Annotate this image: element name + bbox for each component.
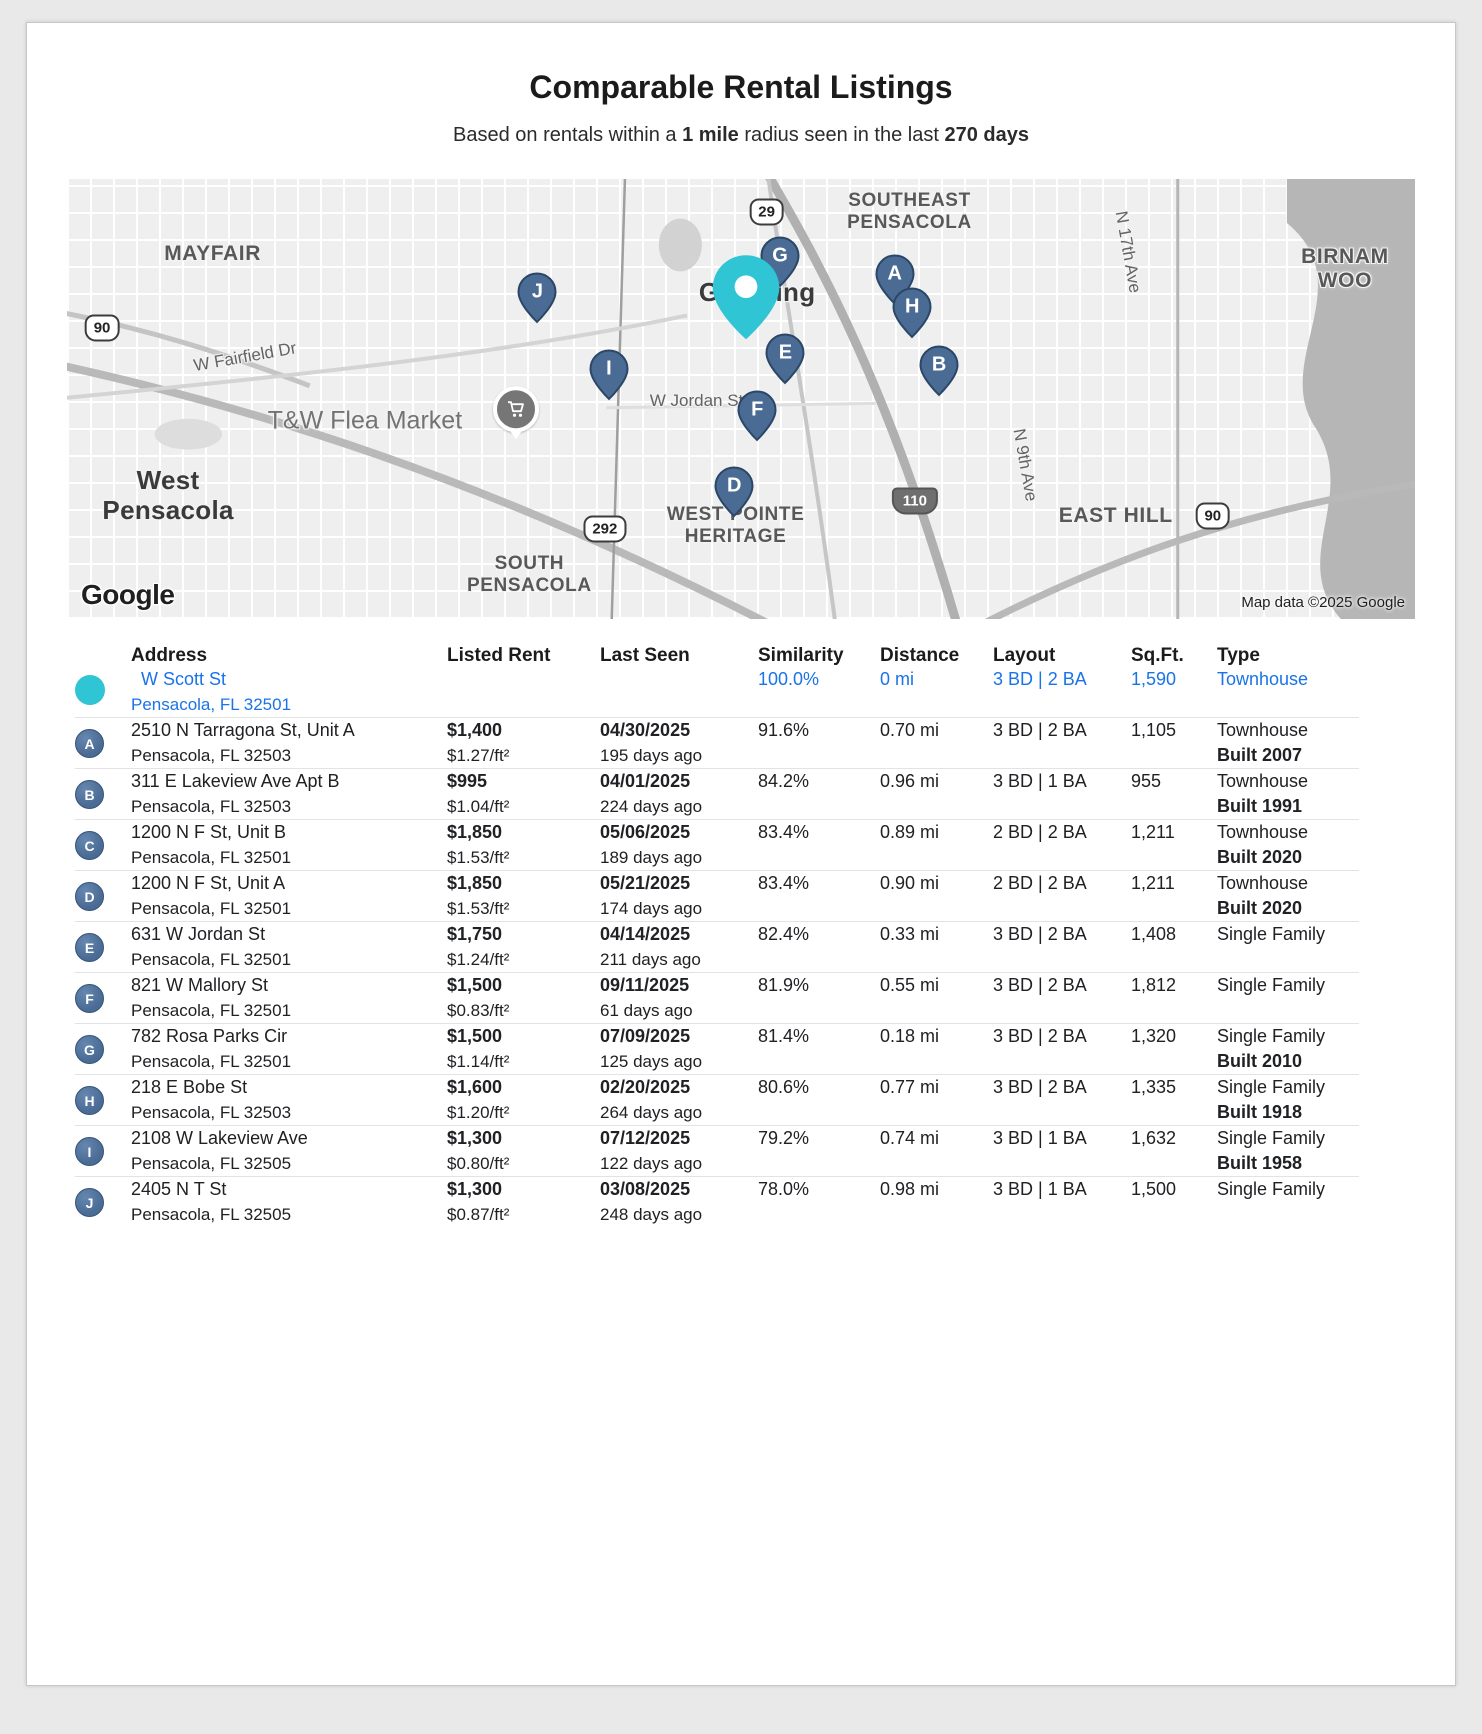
route-shield-90: 90 <box>1195 502 1230 529</box>
map-label-southeast-pensacola: SOUTHEAST PENSACOLA <box>847 190 972 234</box>
listing-last-seen-date: 04/30/2025 <box>600 718 758 743</box>
listing-similarity: 83.4% <box>758 871 880 896</box>
listing-rent-per-sqft: $0.87/ft² <box>447 1202 600 1227</box>
route-shield-90: 90 <box>85 314 120 341</box>
listing-city: Pensacola, FL 32503 <box>131 794 447 819</box>
listing-layout: 3 BD | 1 BA <box>993 1126 1131 1151</box>
listing-rent-per-sqft: $1.04/ft² <box>447 794 600 819</box>
listing-city: Pensacola, FL 32505 <box>131 1151 447 1176</box>
listing-address: 782 Rosa Parks Cir <box>131 1024 447 1049</box>
map-pin-B[interactable]: B <box>919 345 959 402</box>
listing-similarity: 91.6% <box>758 718 880 743</box>
map-pin-H[interactable]: H <box>892 287 932 344</box>
listing-type: Townhouse <box>1217 718 1359 743</box>
listing-marker-badge: A <box>75 729 104 758</box>
park-shape <box>659 219 702 272</box>
route-shield-292: 292 <box>583 515 626 542</box>
listing-row: F 821 W Mallory St Pensacola, FL 32501 $… <box>75 973 1359 1024</box>
listing-city: Pensacola, FL 32501 <box>131 845 447 870</box>
listing-address: 2108 W Lakeview Ave <box>131 1126 447 1151</box>
listing-type: Single Family <box>1217 1024 1359 1049</box>
listing-address: 631 W Jordan St <box>131 922 447 947</box>
listing-row: G 782 Rosa Parks Cir Pensacola, FL 32501… <box>75 1024 1359 1075</box>
listing-similarity: 78.0% <box>758 1177 880 1202</box>
listing-city: Pensacola, FL 32501 <box>131 947 447 972</box>
route-shield-29: 29 <box>749 199 784 226</box>
map-label-south-pensacola: SOUTH PENSACOLA <box>467 553 592 597</box>
listing-sqft: 955 <box>1131 769 1217 794</box>
listing-last-seen-ago: 174 days ago <box>600 896 758 921</box>
listing-rent-per-sqft: $1.53/ft² <box>447 845 600 870</box>
listing-type: Single Family <box>1217 922 1359 947</box>
listing-built: Built 2010 <box>1217 1049 1359 1074</box>
listing-layout: 3 BD | 1 BA <box>993 769 1131 794</box>
listing-last-seen-date: 07/12/2025 <box>600 1126 758 1151</box>
park-shape <box>155 419 222 450</box>
map-pin-letter: J <box>532 281 543 304</box>
listing-type: Single Family <box>1217 1126 1359 1151</box>
map-pin-letter: F <box>751 399 763 422</box>
col-header-badge <box>75 645 131 667</box>
map-pin-F[interactable]: F <box>737 390 777 447</box>
map-pin-letter: I <box>606 358 612 381</box>
subject-type: Townhouse <box>1217 667 1359 692</box>
page-title: Comparable Rental Listings <box>27 69 1455 106</box>
listing-type: Single Family <box>1217 973 1359 998</box>
map-pin-J[interactable]: J <box>517 272 557 329</box>
listing-last-seen-date: 05/21/2025 <box>600 871 758 896</box>
listing-built: Built 2020 <box>1217 896 1359 921</box>
listing-similarity: 81.4% <box>758 1024 880 1049</box>
listing-row: E 631 W Jordan St Pensacola, FL 32501 $1… <box>75 922 1359 973</box>
listing-rent-per-sqft: $1.24/ft² <box>447 947 600 972</box>
listing-rent-per-sqft: $1.53/ft² <box>447 896 600 921</box>
flea-market-pin[interactable] <box>493 386 539 439</box>
listing-built: Built 2007 <box>1217 743 1359 768</box>
col-header-distance: Distance <box>880 645 993 667</box>
listing-similarity: 82.4% <box>758 922 880 947</box>
map-label-w-jordan-st: W Jordan St <box>650 391 744 411</box>
table-header-row: Address Listed Rent Last Seen Similarity… <box>75 645 1359 667</box>
listing-rent-per-sqft: $1.20/ft² <box>447 1100 600 1125</box>
map-pin-letter: H <box>905 295 919 318</box>
listing-address: 2510 N Tarragona St, Unit A <box>131 718 447 743</box>
listing-sqft: 1,335 <box>1131 1075 1217 1100</box>
listing-distance: 0.33 mi <box>880 922 993 947</box>
listing-marker-badge: D <box>75 882 104 911</box>
listing-rent: $1,500 <box>447 973 600 998</box>
listing-distance: 0.89 mi <box>880 820 993 845</box>
map-pin-letter: B <box>932 353 946 376</box>
listing-city: Pensacola, FL 32501 <box>131 998 447 1023</box>
listing-marker-badge: B <box>75 780 104 809</box>
map-pin-letter: D <box>727 475 741 498</box>
listing-rent: $995 <box>447 769 600 794</box>
subject-marker-dot <box>75 675 105 705</box>
listing-type: Townhouse <box>1217 871 1359 896</box>
map-label-birnam-wood: BIRNAM WOO <box>1301 245 1389 293</box>
listing-last-seen-date: 04/01/2025 <box>600 769 758 794</box>
listing-last-seen-date: 09/11/2025 <box>600 973 758 998</box>
map-pin-letter: E <box>779 341 792 364</box>
listing-distance: 0.98 mi <box>880 1177 993 1202</box>
listing-similarity: 81.9% <box>758 973 880 998</box>
listing-built: Built 2020 <box>1217 845 1359 870</box>
listing-rent: $1,300 <box>447 1126 600 1151</box>
col-header-type: Type <box>1217 645 1359 667</box>
listing-similarity: 83.4% <box>758 820 880 845</box>
col-header-layout: Layout <box>993 645 1131 667</box>
listing-type: Single Family <box>1217 1177 1359 1202</box>
map-label-tw-flea-market: T&W Flea Market <box>268 407 462 436</box>
listing-sqft: 1,211 <box>1131 871 1217 896</box>
listing-similarity: 79.2% <box>758 1126 880 1151</box>
report-card: Comparable Rental Listings Based on rent… <box>26 22 1456 1686</box>
listing-distance: 0.96 mi <box>880 769 993 794</box>
listing-layout: 3 BD | 2 BA <box>993 1024 1131 1049</box>
map-pin-I[interactable]: I <box>589 349 629 406</box>
listing-row: C 1200 N F St, Unit B Pensacola, FL 3250… <box>75 820 1359 871</box>
listing-sqft: 1,211 <box>1131 820 1217 845</box>
listing-address: 2405 N T St <box>131 1177 447 1202</box>
listing-last-seen-date: 05/06/2025 <box>600 820 758 845</box>
listing-city: Pensacola, FL 32503 <box>131 743 447 768</box>
listing-marker-badge: J <box>75 1188 104 1217</box>
listing-distance: 0.70 mi <box>880 718 993 743</box>
listing-address: 1200 N F St, Unit A <box>131 871 447 896</box>
listing-rent-per-sqft: $0.80/ft² <box>447 1151 600 1176</box>
listing-last-seen-ago: 125 days ago <box>600 1049 758 1074</box>
listing-distance: 0.77 mi <box>880 1075 993 1100</box>
map-attribution: Map data ©2025 Google <box>1241 594 1405 611</box>
listing-last-seen-ago: 189 days ago <box>600 845 758 870</box>
listing-rent: $1,500 <box>447 1024 600 1049</box>
listing-rent-per-sqft: $1.27/ft² <box>447 743 600 768</box>
listing-rent-per-sqft: $1.14/ft² <box>447 1049 600 1074</box>
listing-row: D 1200 N F St, Unit A Pensacola, FL 3250… <box>75 871 1359 922</box>
listing-layout: 3 BD | 1 BA <box>993 1177 1131 1202</box>
col-header-similarity: Similarity <box>758 645 880 667</box>
route-shield-110: 110 <box>892 488 938 515</box>
listing-built: Built 1958 <box>1217 1151 1359 1176</box>
listing-last-seen-ago: 211 days ago <box>600 947 758 972</box>
listing-last-seen-ago: 264 days ago <box>600 1100 758 1125</box>
map-label-west-pensacola: West Pensacola <box>102 466 233 526</box>
listing-similarity: 80.6% <box>758 1075 880 1100</box>
col-header-sqft: Sq.Ft. <box>1131 645 1217 667</box>
col-header-last-seen: Last Seen <box>600 645 758 667</box>
listing-rent: $1,600 <box>447 1075 600 1100</box>
listing-distance: 0.55 mi <box>880 973 993 998</box>
listing-distance: 0.18 mi <box>880 1024 993 1049</box>
listing-last-seen-ago: 224 days ago <box>600 794 758 819</box>
listing-last-seen-ago: 122 days ago <box>600 1151 758 1176</box>
listing-layout: 3 BD | 2 BA <box>993 973 1131 998</box>
listing-built: Built 1991 <box>1217 794 1359 819</box>
listing-marker-badge: H <box>75 1086 104 1115</box>
listing-layout: 3 BD | 2 BA <box>993 1075 1131 1100</box>
listing-rent: $1,300 <box>447 1177 600 1202</box>
map-label-mayfair: MAYFAIR <box>164 242 261 266</box>
listing-layout: 2 BD | 2 BA <box>993 871 1131 896</box>
map-pin-letter: A <box>887 262 901 285</box>
listing-address: 218 E Bobe St <box>131 1075 447 1100</box>
listing-last-seen-ago: 248 days ago <box>600 1202 758 1227</box>
listing-city: Pensacola, FL 32501 <box>131 896 447 921</box>
listing-last-seen-ago: 195 days ago <box>600 743 758 768</box>
listing-row: J 2405 N T St Pensacola, FL 32505 $1,300… <box>75 1177 1359 1228</box>
listing-marker-badge: G <box>75 1035 104 1064</box>
listing-layout: 3 BD | 2 BA <box>993 922 1131 947</box>
listing-similarity: 84.2% <box>758 769 880 794</box>
listing-sqft: 1,408 <box>1131 922 1217 947</box>
listing-rent-per-sqft: $0.83/ft² <box>447 998 600 1023</box>
subject-layout: 3 BD | 2 BA <box>993 667 1131 692</box>
map[interactable]: Google Map data ©2025 Google MAYFAIRWest… <box>67 179 1415 619</box>
listing-type: Townhouse <box>1217 769 1359 794</box>
listing-row: B 311 E Lakeview Ave Apt B Pensacola, FL… <box>75 769 1359 820</box>
map-label-east-hill: EAST HILL <box>1059 504 1173 528</box>
listing-row: H 218 E Bobe St Pensacola, FL 32503 $1,6… <box>75 1075 1359 1126</box>
subject-address: W Scott St <box>131 667 447 692</box>
subject-city: Pensacola, FL 32501 <box>131 692 447 717</box>
listing-sqft: 1,632 <box>1131 1126 1217 1151</box>
listing-last-seen-date: 07/09/2025 <box>600 1024 758 1049</box>
listing-built: Built 1918 <box>1217 1100 1359 1125</box>
col-header-address: Address <box>131 645 447 667</box>
listing-type: Townhouse <box>1217 820 1359 845</box>
listing-sqft: 1,812 <box>1131 973 1217 998</box>
listing-layout: 2 BD | 2 BA <box>993 820 1131 845</box>
listing-row: I 2108 W Lakeview Ave Pensacola, FL 3250… <box>75 1126 1359 1177</box>
listing-layout: 3 BD | 2 BA <box>993 718 1131 743</box>
listing-sqft: 1,500 <box>1131 1177 1217 1202</box>
subject-distance: 0 mi <box>880 667 993 692</box>
listing-distance: 0.74 mi <box>880 1126 993 1151</box>
listing-marker-badge: I <box>75 1137 104 1166</box>
listing-address: 311 E Lakeview Ave Apt B <box>131 769 447 794</box>
col-header-rent: Listed Rent <box>447 645 600 667</box>
listing-marker-badge: E <box>75 933 104 962</box>
listing-rent: $1,750 <box>447 922 600 947</box>
listing-sqft: 1,105 <box>1131 718 1217 743</box>
subject-similarity: 100.0% <box>758 667 880 692</box>
subject-sqft: 1,590 <box>1131 667 1217 692</box>
listing-last-seen-date: 02/20/2025 <box>600 1075 758 1100</box>
listing-sqft: 1,320 <box>1131 1024 1217 1049</box>
listing-marker-badge: F <box>75 984 104 1013</box>
page-subtitle: Based on rentals within a 1 mile radius … <box>27 124 1455 147</box>
listing-last-seen-ago: 61 days ago <box>600 998 758 1023</box>
map-pin-E[interactable]: E <box>765 333 805 390</box>
listing-city: Pensacola, FL 32503 <box>131 1100 447 1125</box>
comps-table: Address Listed Rent Last Seen Similarity… <box>75 645 1359 1227</box>
listing-last-seen-date: 04/14/2025 <box>600 922 758 947</box>
listing-rent: $1,850 <box>447 820 600 845</box>
listing-rent: $1,850 <box>447 871 600 896</box>
listing-row: A 2510 N Tarragona St, Unit A Pensacola,… <box>75 718 1359 769</box>
listing-city: Pensacola, FL 32505 <box>131 1202 447 1227</box>
shopping-cart-icon <box>493 386 539 432</box>
listing-address: 821 W Mallory St <box>131 973 447 998</box>
subject-row: W Scott St Pensacola, FL 32501 100.0% 0 … <box>75 667 1359 718</box>
google-logo[interactable]: Google <box>81 579 174 611</box>
listing-type: Single Family <box>1217 1075 1359 1100</box>
listing-last-seen-date: 03/08/2025 <box>600 1177 758 1202</box>
listing-rent: $1,400 <box>447 718 600 743</box>
map-pin-D[interactable]: D <box>714 466 754 523</box>
listing-distance: 0.90 mi <box>880 871 993 896</box>
listing-city: Pensacola, FL 32501 <box>131 1049 447 1074</box>
listing-marker-badge: C <box>75 831 104 860</box>
listing-address: 1200 N F St, Unit B <box>131 820 447 845</box>
